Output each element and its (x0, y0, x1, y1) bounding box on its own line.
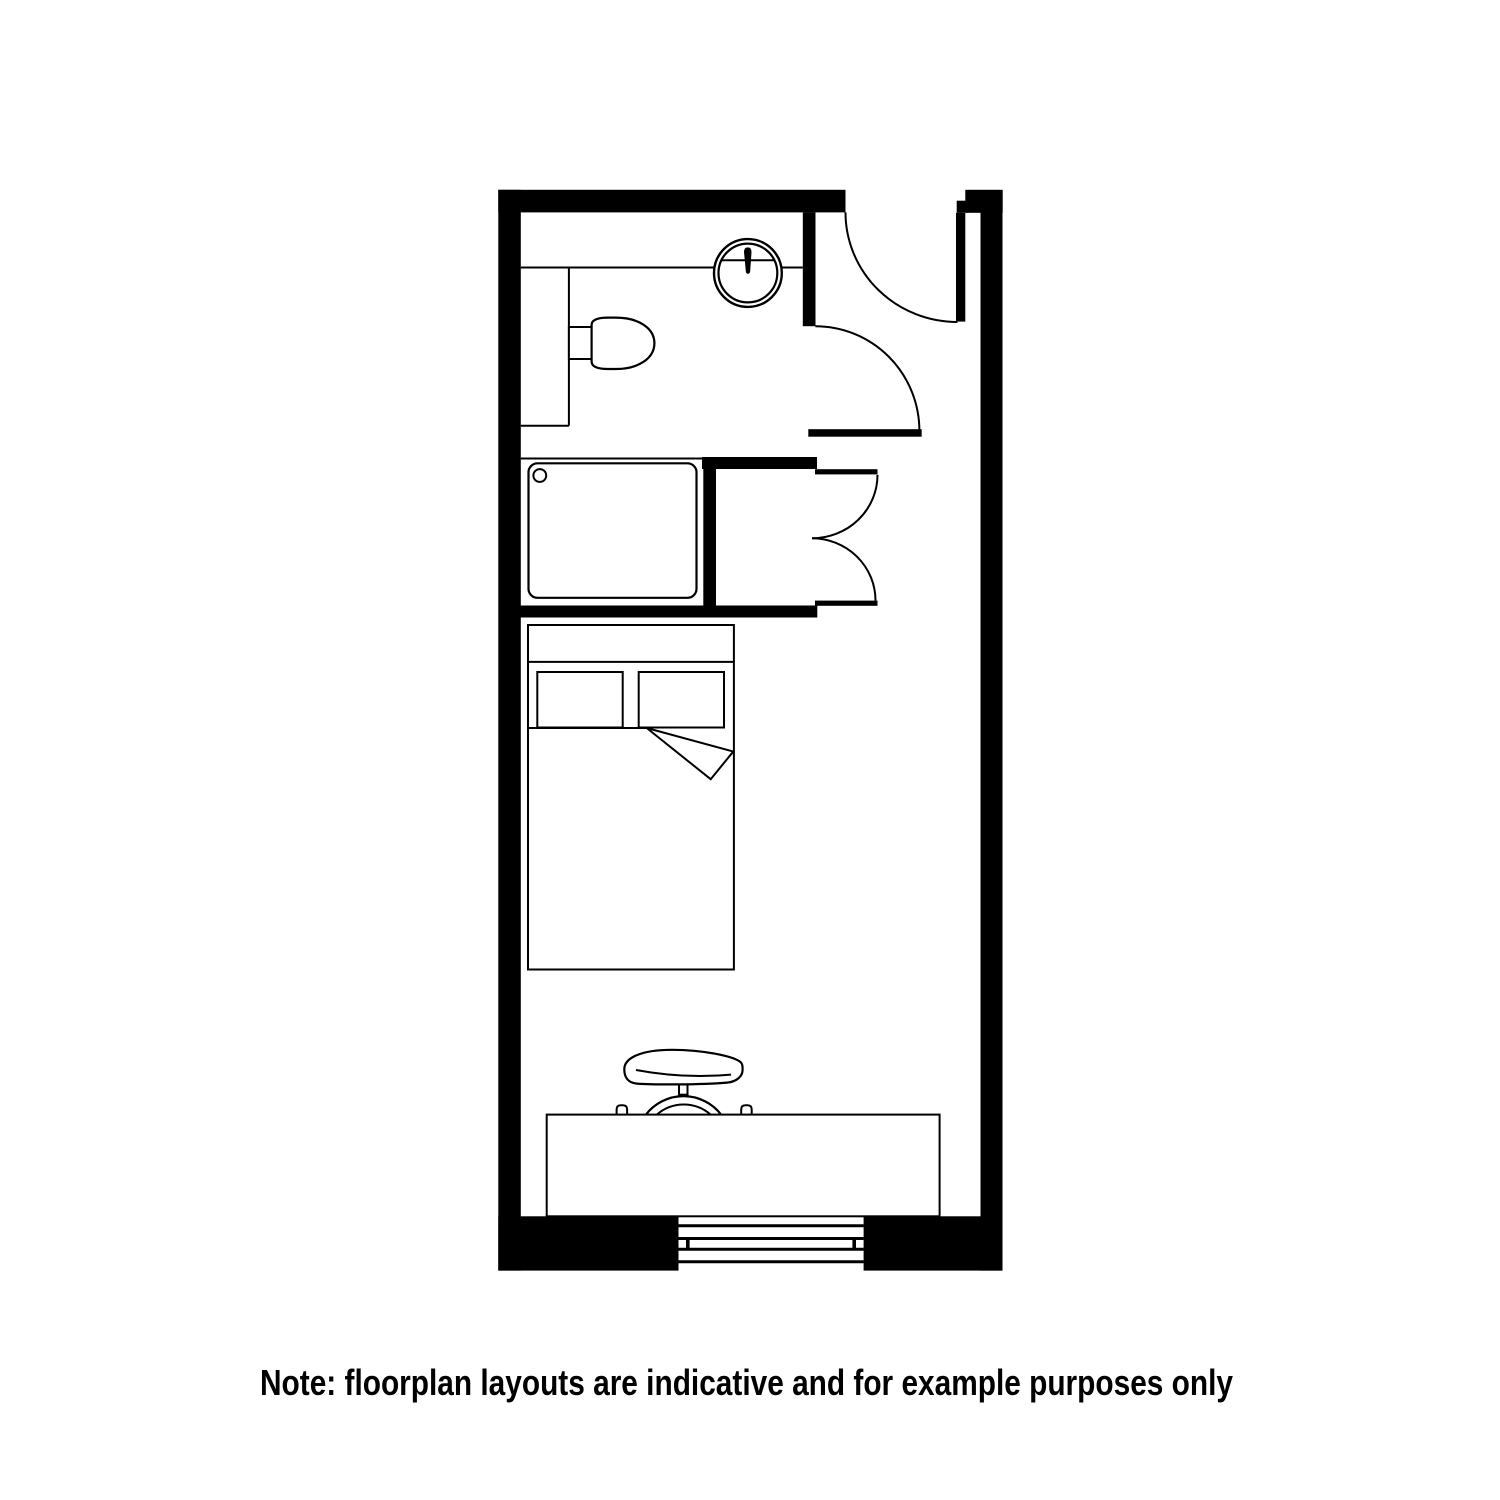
svg-text:Note: floorplan layouts are in: Note: floorplan layouts are indicative a… (260, 1362, 1233, 1403)
